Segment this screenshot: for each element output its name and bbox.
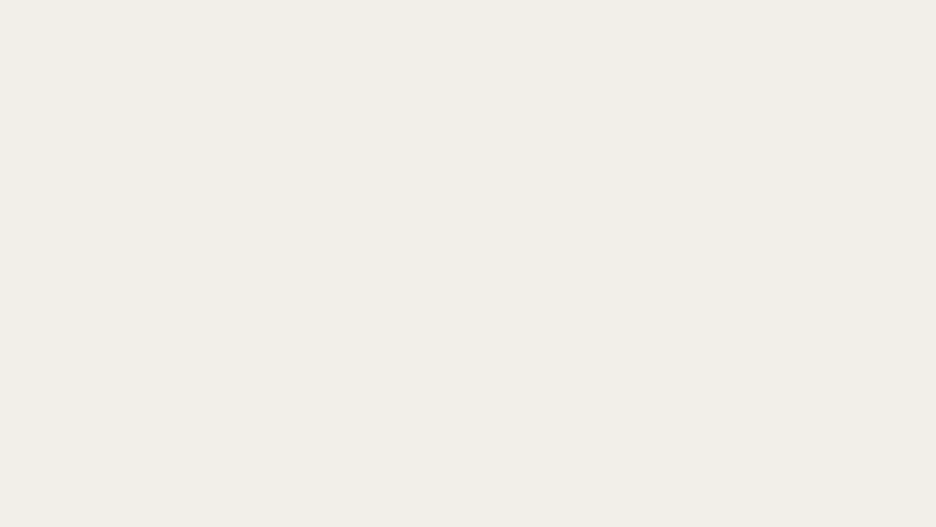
- base-map-graphics: [0, 0, 936, 527]
- map-canvas[interactable]: [0, 0, 936, 527]
